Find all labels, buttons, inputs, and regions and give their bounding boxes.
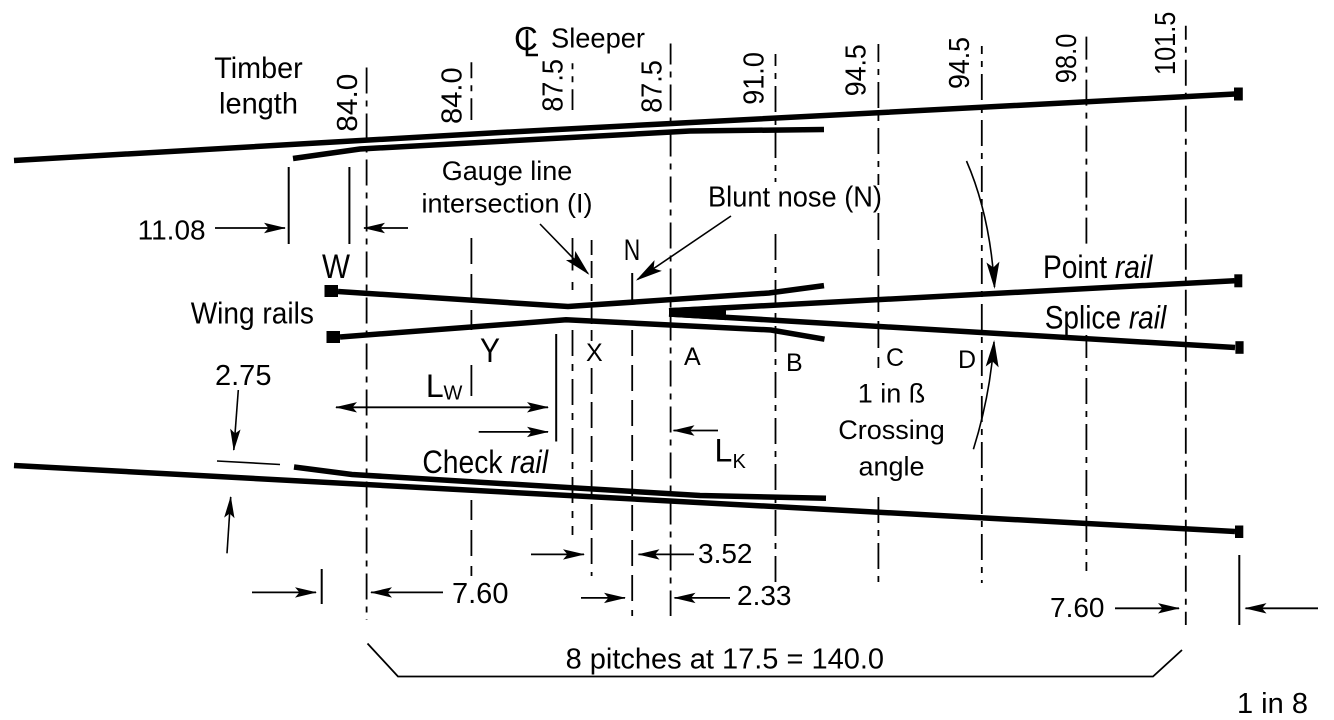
svg-text:Splice rail: Splice rail	[1045, 300, 1167, 336]
svg-text:W: W	[444, 383, 463, 405]
svg-text:3.52: 3.52	[698, 538, 753, 569]
svg-text:84.0: 84.0	[436, 67, 468, 124]
svg-text:87.5: 87.5	[637, 60, 669, 113]
svg-text:W: W	[322, 248, 350, 286]
svg-text:Timber: Timber	[214, 52, 302, 85]
svg-text:1 in ß: 1 in ß	[858, 379, 926, 409]
svg-text:Blunt nose (N): Blunt nose (N)	[708, 181, 882, 213]
svg-text:101.5: 101.5	[1150, 12, 1182, 75]
svg-text:7.60: 7.60	[452, 578, 508, 610]
svg-text:Point rail: Point rail	[1043, 249, 1153, 285]
svg-text:K: K	[733, 451, 747, 473]
svg-text:intersection (I): intersection (I)	[421, 189, 592, 219]
svg-text:Wing rails: Wing rails	[191, 296, 314, 331]
svg-text:length: length	[219, 88, 298, 121]
svg-text:11.08: 11.08	[138, 214, 206, 245]
svg-text:L: L	[426, 368, 444, 404]
svg-text:L: L	[715, 433, 733, 469]
svg-text:8 pitches at 17.5 = 140.0: 8 pitches at 17.5 = 140.0	[566, 644, 884, 676]
svg-text:94.5: 94.5	[944, 37, 976, 89]
svg-text:B: B	[786, 349, 803, 377]
svg-text:91.0: 91.0	[739, 52, 771, 105]
svg-text:Sleeper: Sleeper	[551, 23, 645, 54]
svg-text:2.75: 2.75	[215, 360, 271, 392]
svg-text:94.5: 94.5	[840, 44, 872, 96]
svg-text:Crossing: Crossing	[838, 415, 945, 445]
svg-text:A: A	[684, 343, 701, 371]
svg-text:98.0: 98.0	[1051, 34, 1083, 84]
svg-text:C: C	[886, 344, 904, 372]
svg-text:1 in 8: 1 in 8	[1237, 688, 1308, 720]
svg-text:Gauge line: Gauge line	[442, 156, 573, 186]
svg-text:7.60: 7.60	[1050, 592, 1105, 623]
svg-text:angle: angle	[858, 452, 924, 482]
svg-text:87.5: 87.5	[538, 59, 570, 112]
svg-text:X: X	[586, 339, 603, 367]
svg-text:84.0: 84.0	[332, 74, 364, 132]
svg-text:N: N	[624, 234, 641, 267]
svg-text:Check rail: Check rail	[422, 444, 548, 480]
svg-text:D: D	[958, 346, 976, 374]
svg-text:2.33: 2.33	[737, 580, 792, 611]
svg-text:Y: Y	[480, 332, 500, 370]
